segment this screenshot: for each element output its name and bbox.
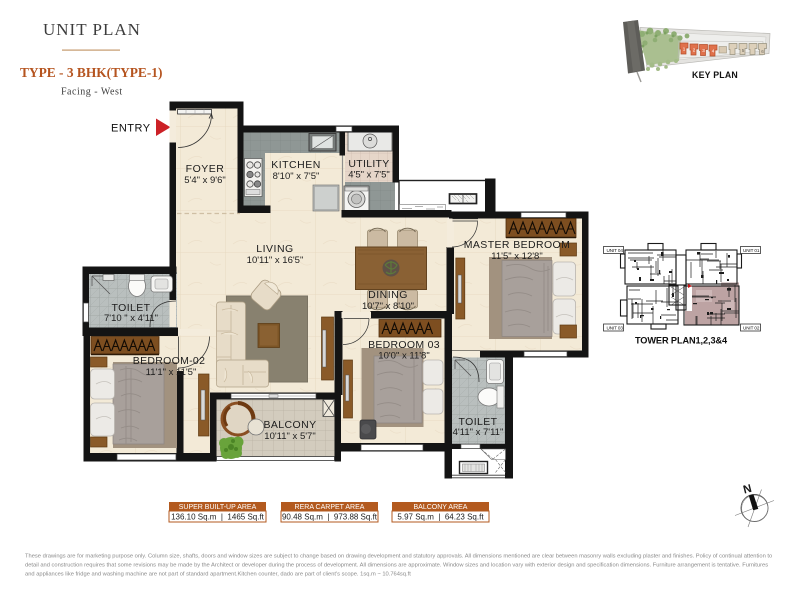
svg-text:10'7" x 8'10": 10'7" x 8'10" [362,301,414,312]
svg-text:5'4" x 9'6": 5'4" x 9'6" [184,175,226,186]
svg-text:SUPER BUILT-UP AREA: SUPER BUILT-UP AREA [179,504,257,511]
svg-text:MASTER BEDROOM: MASTER BEDROOM [464,239,571,251]
svg-text:5: 5 [742,48,745,53]
svg-text:1: 1 [683,47,686,52]
svg-text:BEDROOM-02: BEDROOM-02 [133,355,205,367]
svg-text:2: 2 [693,48,696,53]
svg-text:UNIT 04: UNIT 04 [607,248,624,253]
svg-text:BALCONY: BALCONY [264,419,317,431]
svg-text:KITCHEN: KITCHEN [271,159,321,171]
svg-text:4'11" x 7'11": 4'11" x 7'11" [453,427,504,438]
svg-text:detail and construction requir: detail and construction requires that so… [25,563,768,569]
svg-text:UTILITY: UTILITY [348,158,389,170]
svg-text:These drawings are for marketi: These drawings are for marketing purpose… [25,554,772,560]
svg-text:5.97 Sq.m | 64.23 Sq.ft: 5.97 Sq.m | 64.23 Sq.ft [397,513,484,522]
svg-text:BEDROOM 03: BEDROOM 03 [368,339,440,351]
svg-text:10'11" x 5'7": 10'11" x 5'7" [264,431,315,442]
svg-text:N: N [742,483,753,497]
svg-text:and appliances like fridge and: and appliances like fridge and washing m… [25,572,411,578]
svg-text:TYPE - 3 BHK(TYPE-1): TYPE - 3 BHK(TYPE-1) [20,65,162,80]
svg-text:FOYER: FOYER [186,163,225,175]
svg-text:10'0" x 11'8": 10'0" x 11'8" [378,351,429,362]
svg-text:UNIT 01: UNIT 01 [743,248,760,253]
svg-text:4'5" x 7'5": 4'5" x 7'5" [348,170,390,181]
svg-text:BALCONY AREA: BALCONY AREA [414,504,468,511]
svg-text:7'10 " x 4'11": 7'10 " x 4'11" [104,313,158,324]
svg-text:UNIT PLAN: UNIT PLAN [43,20,141,39]
svg-text:TOWER PLAN1,2,3&4: TOWER PLAN1,2,3&4 [635,336,728,346]
svg-text:11'5" x 12'8": 11'5" x 12'8" [491,251,542,262]
svg-text:11'1" x 11'5": 11'1" x 11'5" [146,367,197,378]
svg-text:LIVING: LIVING [256,243,293,255]
svg-text:8'10" x 7'5": 8'10" x 7'5" [273,171,320,182]
svg-text:DINING: DINING [368,289,408,301]
svg-text:RERA CARPET AREA: RERA CARPET AREA [295,504,365,511]
svg-text:UNIT 02: UNIT 02 [743,326,760,331]
svg-text:ENTRY: ENTRY [111,123,151,135]
svg-text:10'11" x 16'5": 10'11" x 16'5" [247,255,304,266]
svg-text:90.48 Sq.m | 973.88 Sq.ft: 90.48 Sq.m | 973.88 Sq.ft [282,513,378,522]
svg-text:136.10 Sq.m | 1465 Sq.ft: 136.10 Sq.m | 1465 Sq.ft [171,513,265,522]
svg-text:3: 3 [702,48,705,53]
svg-text:Facing - West: Facing - West [61,87,123,98]
svg-text:6: 6 [761,49,764,54]
svg-text:4: 4 [712,49,715,54]
svg-text:KEY PLAN: KEY PLAN [692,70,738,80]
svg-text:UNIT 03: UNIT 03 [607,326,624,331]
